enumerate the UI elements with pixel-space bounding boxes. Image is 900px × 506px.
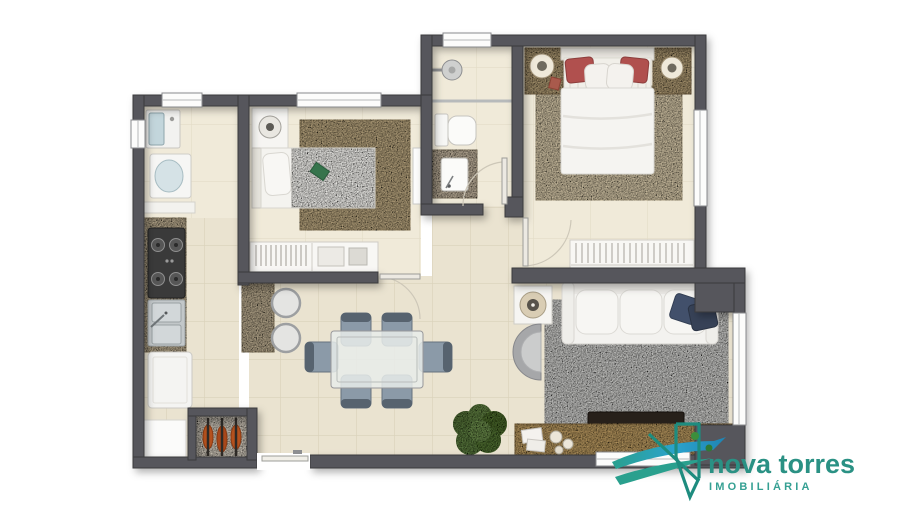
brand-tagline: IMOBILIÁRIA (709, 480, 813, 493)
bed-pillow (262, 152, 292, 196)
single-bed (252, 148, 375, 208)
nightstand-decor (549, 77, 561, 90)
double-sink (148, 300, 185, 346)
wall-bbq-right (247, 408, 257, 460)
sofa-cushion (576, 290, 618, 334)
wardrobe-shelf (318, 247, 344, 266)
master-door-leaf (523, 218, 528, 266)
dining-table (331, 331, 423, 388)
white-pillow (606, 63, 634, 91)
dining-chair (419, 342, 452, 372)
wall-bbq-top (188, 408, 255, 416)
entrance-door-mark (293, 450, 302, 454)
refrigerator (148, 352, 192, 408)
bathroom-door-leaf (502, 158, 507, 204)
wall-bathroom-left (421, 95, 432, 215)
bar-stool (272, 324, 300, 352)
logo-tree (691, 432, 699, 440)
floorplan-page: nova torres IMOBILIÁRIA (0, 0, 900, 506)
floorplan-illustration: nova torres IMOBILIÁRIA (0, 0, 900, 506)
wall-hall-pillar (505, 197, 523, 217)
wardrobe-box (349, 248, 367, 265)
barbecue-grill (196, 416, 247, 458)
laundry-shelf (143, 202, 195, 213)
mirror-panel (413, 148, 421, 204)
decor-bowl (563, 439, 573, 449)
bed-blanket (292, 149, 374, 207)
double-bed (561, 48, 654, 174)
wardrobe (250, 242, 378, 272)
vanity-sink (433, 150, 477, 198)
washing-machine-glass-lid (149, 113, 164, 145)
wall-left (133, 95, 144, 468)
hallway-floor (432, 206, 523, 283)
sofa-armrest (562, 282, 574, 344)
laundry-tub-basin (155, 160, 183, 192)
utility-closet (144, 420, 186, 458)
decor-bowl (555, 446, 563, 454)
wall-kitchen-divider (238, 95, 249, 285)
sofa-cushion (620, 290, 662, 334)
wall-master-bottom (512, 268, 745, 283)
bed-duvet (561, 88, 654, 174)
stove (148, 228, 185, 298)
wall-bathroom-bottom (421, 204, 483, 215)
entrance-door-leaf (262, 456, 308, 461)
decor-bowl (550, 431, 562, 443)
bedroom-door-leaf (380, 274, 420, 279)
toilet (435, 114, 476, 146)
decor-books (526, 439, 545, 452)
washer-knob (170, 117, 174, 121)
wall-master-left (512, 46, 523, 217)
wardrobe (570, 240, 694, 268)
brand-name: nova torres (708, 449, 855, 479)
bed-headboard (252, 148, 261, 208)
bar-stool (272, 289, 300, 317)
wall-bedroom-bottom (238, 272, 378, 283)
